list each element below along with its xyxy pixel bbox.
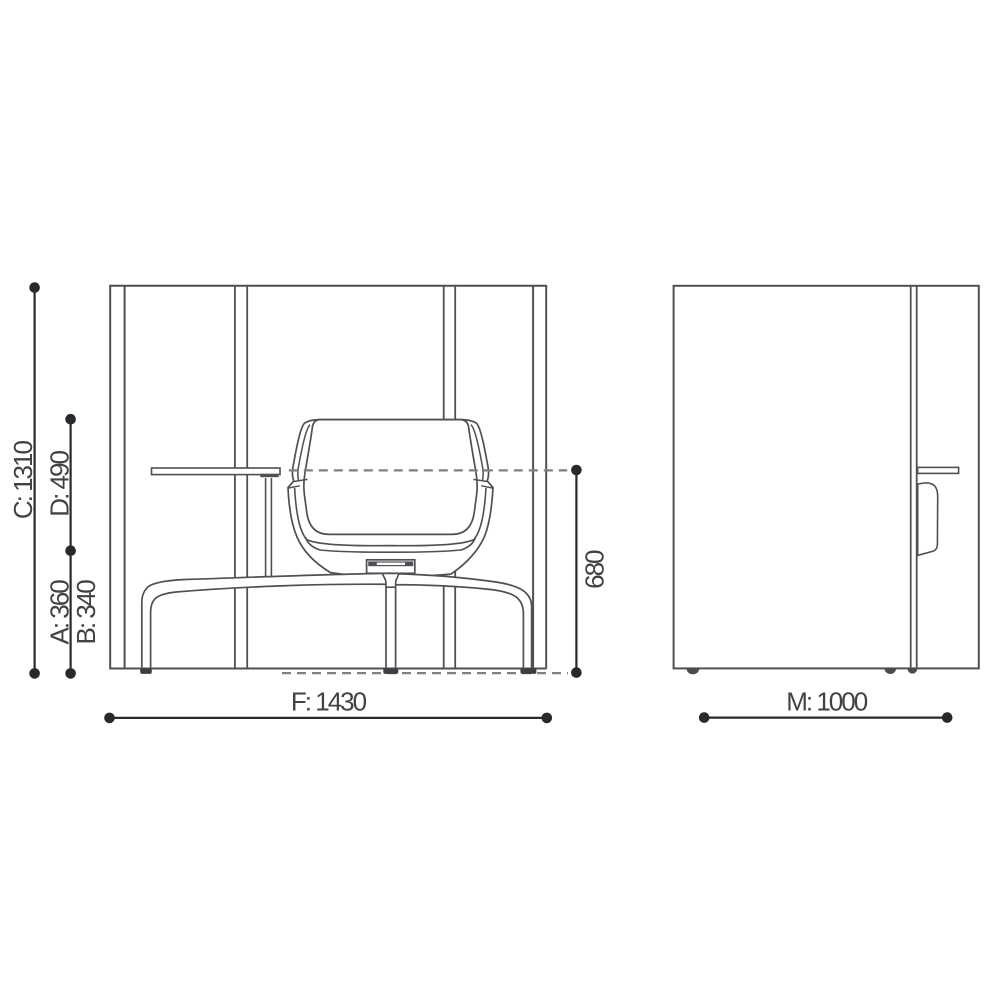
svg-text:M: 1000: M: 1000 [786,686,867,716]
svg-text:A: 360: A: 360 [44,580,74,645]
svg-text:C: 1310: C: 1310 [8,441,38,520]
svg-text:D: 490: D: 490 [44,451,74,517]
svg-text:F: 1430: F: 1430 [291,686,367,716]
svg-text:680: 680 [579,550,609,589]
svg-text:B: 340: B: 340 [71,580,101,645]
